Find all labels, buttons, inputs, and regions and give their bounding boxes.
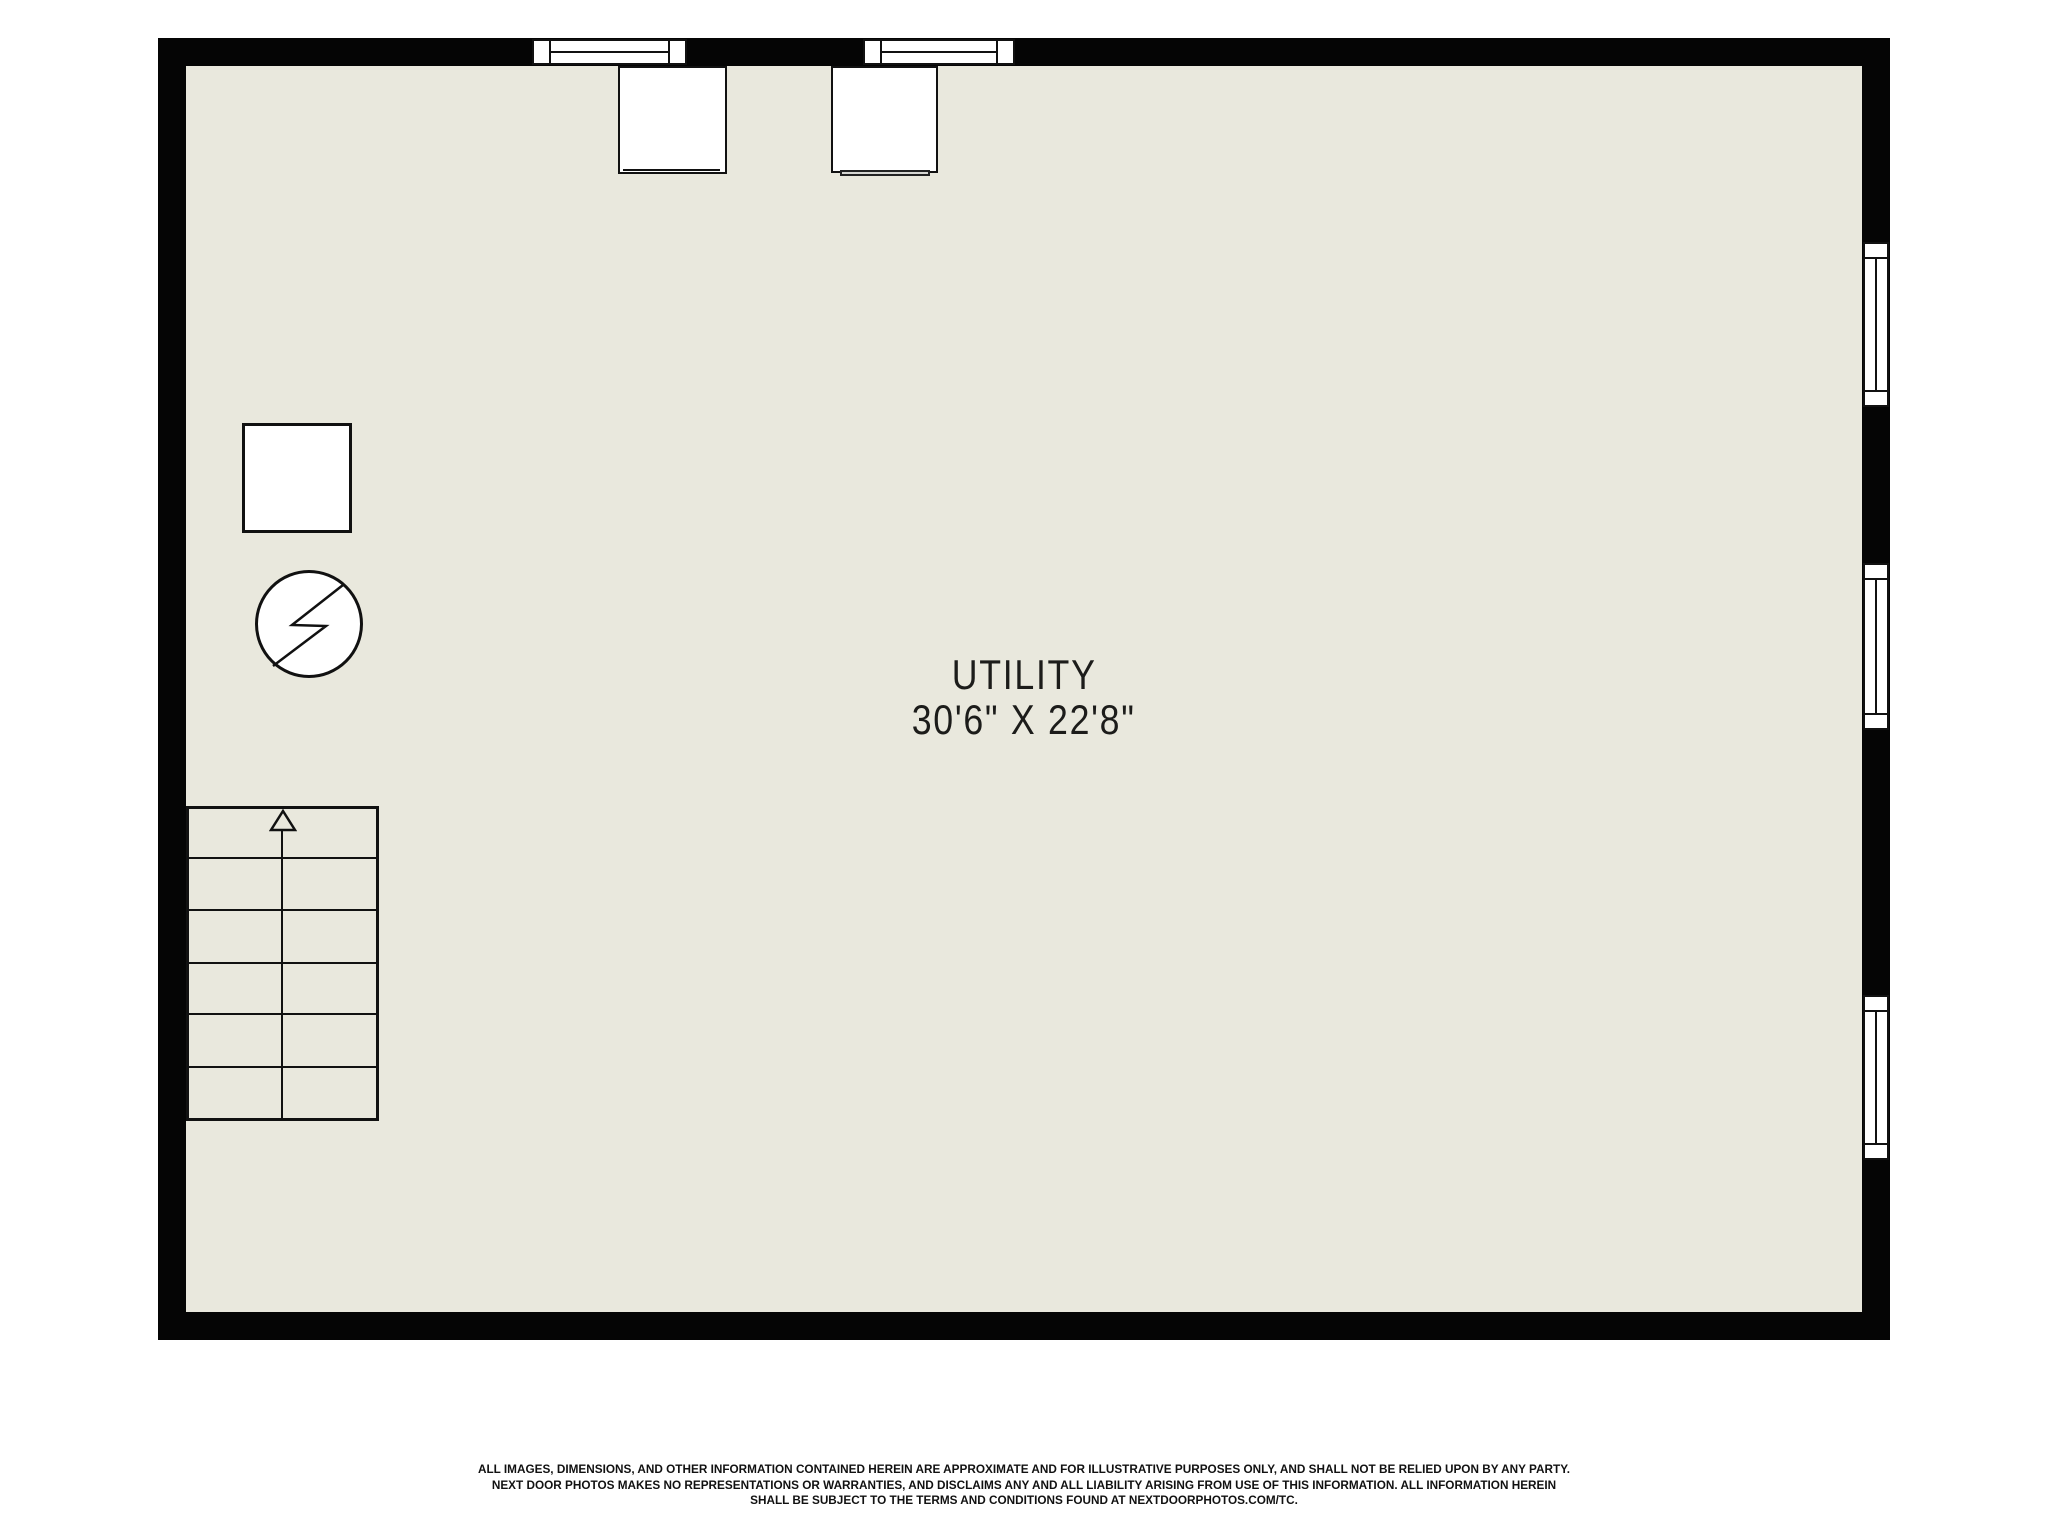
window-top-right — [863, 39, 1015, 65]
window-pane — [882, 41, 996, 63]
floor-plan-page: UTILITY 30'6" X 22'8" ALL IMAGES, DIMENS… — [0, 0, 2048, 1536]
window-frame-cap — [1865, 997, 1887, 1012]
stair-center-rail — [281, 828, 283, 1118]
window-pane — [1865, 1012, 1887, 1143]
window-right-lower — [1863, 995, 1889, 1160]
window-pane — [551, 41, 668, 63]
room-label: UTILITY 30'6" X 22'8" — [0, 652, 2048, 742]
dryer-box — [831, 66, 938, 173]
room-name: UTILITY — [952, 652, 1097, 697]
window-frame-cap — [996, 41, 1013, 63]
window-frame-cap — [1865, 565, 1887, 580]
electrical-panel-box — [242, 423, 352, 533]
disclaimer-line-1: ALL IMAGES, DIMENSIONS, AND OTHER INFORM… — [20, 1462, 2027, 1478]
room-dimensions: 30'6" X 22'8" — [912, 697, 1136, 742]
window-frame-cap — [668, 41, 685, 63]
staircase — [186, 806, 379, 1121]
window-frame-cap — [534, 41, 551, 63]
window-frame-cap — [1865, 244, 1887, 259]
window-right-upper — [1863, 242, 1889, 407]
washer-box — [618, 66, 727, 174]
window-pane — [1865, 259, 1887, 390]
window-frame-cap — [865, 41, 882, 63]
disclaimer-line-2: NEXT DOOR PHOTOS MAKES NO REPRESENTATION… — [20, 1478, 2027, 1494]
disclaimer: ALL IMAGES, DIMENSIONS, AND OTHER INFORM… — [0, 1462, 2048, 1509]
up-arrow-icon — [269, 809, 297, 832]
disclaimer-line-3: SHALL BE SUBJECT TO THE TERMS AND CONDIT… — [20, 1493, 2027, 1509]
window-top-left — [532, 39, 687, 65]
dryer-door-handle — [840, 170, 930, 176]
window-frame-cap — [1865, 390, 1887, 405]
window-frame-cap — [1865, 1143, 1887, 1158]
